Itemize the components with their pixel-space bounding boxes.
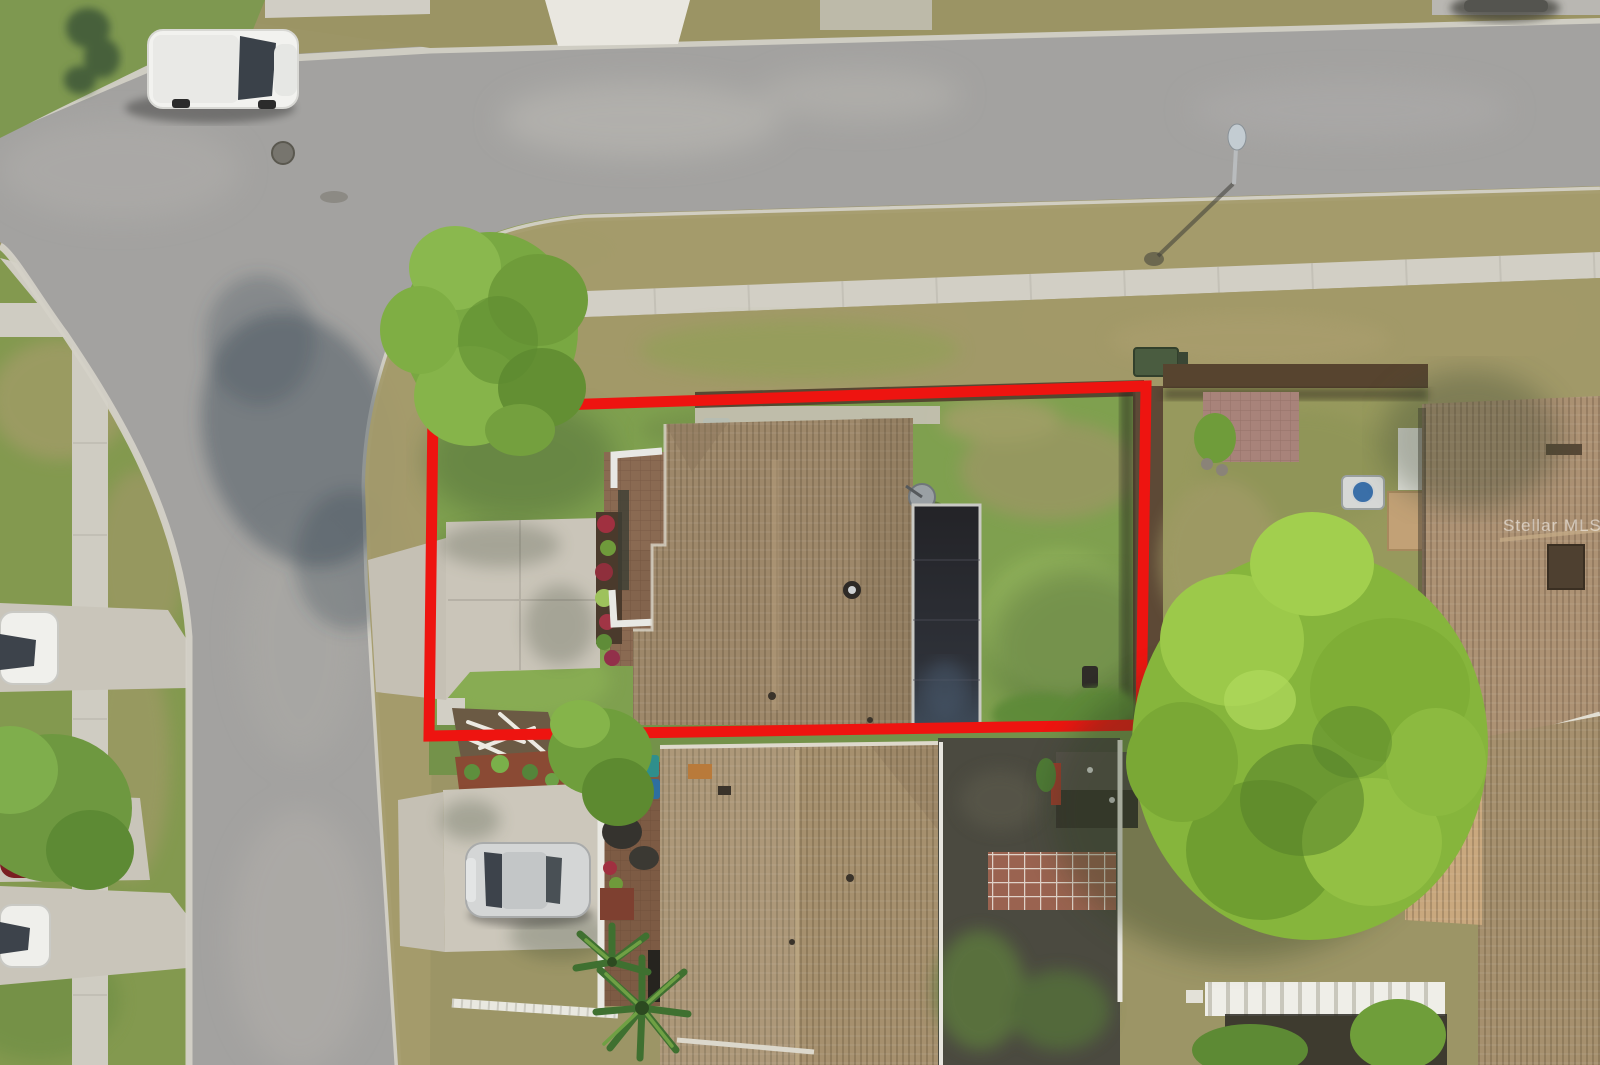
asphalt-patch [320, 191, 348, 203]
aerial-photo: Stellar MLS [0, 0, 1600, 1065]
fence-north-neighbor [1163, 364, 1428, 388]
aerial-scene [0, 0, 1600, 1065]
roof-vent-orange [688, 764, 712, 779]
screen-enclosure [913, 505, 980, 727]
chimney [1548, 545, 1584, 589]
white-car-1 [0, 612, 58, 684]
manhole-cover [272, 142, 294, 164]
ac-unit [1342, 476, 1384, 509]
grill [1082, 666, 1098, 688]
subject-house-roof [633, 418, 913, 735]
driveway-apron-white [545, 0, 690, 46]
streetlight-head [1228, 124, 1246, 150]
shrub [1194, 413, 1236, 463]
front-house-roof [660, 743, 938, 1065]
silver-car [466, 843, 592, 927]
white-car-2 [0, 905, 50, 967]
red-mat [600, 888, 634, 920]
screen-door [618, 490, 629, 590]
white-van [125, 30, 298, 123]
driveway-apron-pale [820, 0, 932, 30]
van-windshield [238, 36, 276, 100]
mls-watermark: Stellar MLS [1503, 516, 1600, 536]
